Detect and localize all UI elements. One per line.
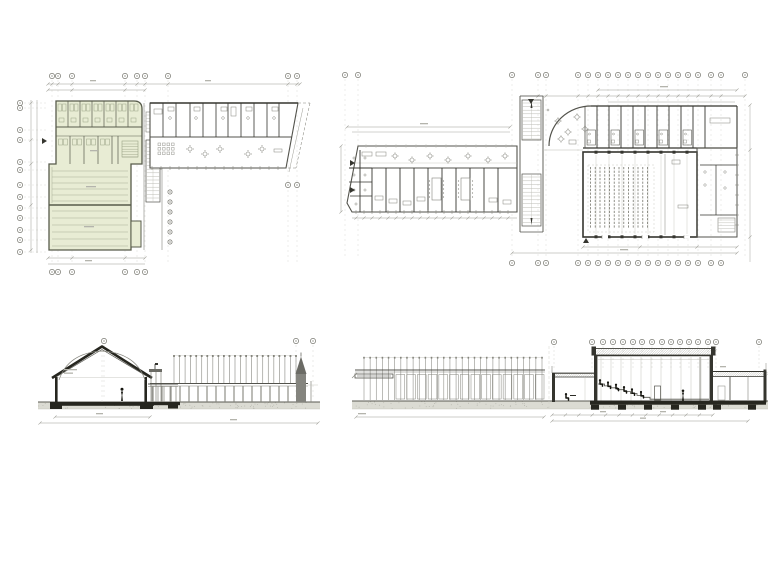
grid-bubble <box>17 194 22 199</box>
grid-bubble <box>142 73 147 78</box>
grid-bubble <box>605 72 610 77</box>
grid-bubble <box>615 260 620 265</box>
person-figure-seated <box>599 379 603 386</box>
grid-bubble <box>655 72 660 77</box>
grid-bubble <box>509 260 514 265</box>
grid-bubble <box>17 237 22 242</box>
grid-bubble <box>575 72 580 77</box>
grid-bubble <box>645 72 650 77</box>
grid-bubble <box>605 260 610 265</box>
grid-bubble <box>122 73 127 78</box>
grid-bubble <box>695 260 700 265</box>
auditorium-box-section <box>590 347 717 410</box>
grid-bubble <box>665 260 670 265</box>
grid-bubble <box>165 73 170 78</box>
grid-bubble <box>620 339 625 344</box>
grid-bubble <box>310 338 315 343</box>
grid-bubble <box>293 338 298 343</box>
right-low-wing-section <box>713 363 768 410</box>
grid-bubble <box>668 339 673 344</box>
grid-bubble <box>535 260 540 265</box>
grid-bubble <box>17 100 22 105</box>
grid-bubble <box>589 339 594 344</box>
grid-bubble <box>168 240 172 244</box>
grid-bubble <box>168 220 172 224</box>
grid-bubble <box>294 182 299 187</box>
grid-bubble <box>708 72 713 77</box>
grid-bubble <box>585 72 590 77</box>
grid-bubble <box>742 72 747 77</box>
grid-bubble <box>685 72 690 77</box>
grid-bubble <box>17 127 22 132</box>
grid-bubble <box>718 260 723 265</box>
grid-bubble <box>625 260 630 265</box>
grid-bubble <box>69 269 74 274</box>
person-figure <box>121 388 124 401</box>
drawing-canvas <box>0 0 768 576</box>
grid-bubble <box>649 339 654 344</box>
person-figure-seated <box>640 391 644 398</box>
grid-bubble <box>49 269 54 274</box>
grid-bubble <box>705 339 710 344</box>
grid-bubble <box>713 339 718 344</box>
architectural-sheet <box>0 0 768 576</box>
grid-bubble <box>168 210 172 214</box>
left-low-wing-section <box>552 366 597 402</box>
grid-bubble <box>17 249 22 254</box>
grid-bubble <box>756 339 761 344</box>
grid-bubble <box>285 182 290 187</box>
grid-bubble <box>655 260 660 265</box>
grid-bubble <box>134 73 139 78</box>
grid-bubble <box>595 260 600 265</box>
grid-bubble <box>610 339 615 344</box>
grid-bubble <box>355 72 360 77</box>
highlighted-sports-building <box>49 101 142 250</box>
grid-bubble <box>543 72 548 77</box>
grid-bubble <box>585 260 590 265</box>
grid-bubble <box>677 339 682 344</box>
grid-bubble <box>17 215 22 220</box>
auditorium-hall <box>583 151 697 243</box>
grid-bubble <box>675 260 680 265</box>
grid-bubble <box>142 269 147 274</box>
grid-bubble <box>294 73 299 78</box>
grid-bubble <box>17 159 22 164</box>
person-figure-seated <box>607 381 611 388</box>
grid-bubble <box>122 269 127 274</box>
floor-plan-east-building <box>339 72 751 265</box>
grid-bubble <box>17 205 22 210</box>
grid-bubble <box>168 190 172 194</box>
grid-bubble <box>685 260 690 265</box>
grid-bubble <box>665 72 670 77</box>
stair-core <box>520 96 543 232</box>
classroom-wing <box>150 103 310 170</box>
dressing-room-strip <box>583 106 737 148</box>
person-figure-seated <box>565 393 569 400</box>
colonnade-elevation <box>150 355 308 402</box>
grid-and-dimensions <box>38 338 319 424</box>
grid-bubble <box>708 260 713 265</box>
grid-bubble <box>718 72 723 77</box>
grid-bubble <box>285 73 290 78</box>
grid-bubble <box>551 339 556 344</box>
foyer-curved-wall <box>543 106 591 150</box>
person-figure-seated <box>631 388 635 395</box>
grid-bubble <box>595 72 600 77</box>
grid-bubble <box>625 72 630 77</box>
stage-annex <box>697 148 739 237</box>
grid-bubble <box>645 260 650 265</box>
grid-bubble <box>509 72 514 77</box>
person-figure-seated <box>615 384 619 391</box>
grid-bubble <box>55 73 60 78</box>
grid-bubble <box>17 182 22 187</box>
grid-bubble <box>600 339 605 344</box>
grid-bubble <box>615 72 620 77</box>
grid-bubble <box>101 338 106 343</box>
grid-bubble <box>695 339 700 344</box>
grid-bubble <box>17 227 22 232</box>
grid-bubble <box>635 72 640 77</box>
grid-bubble <box>168 230 172 234</box>
grid-bubble <box>639 339 644 344</box>
floor-plan-west-building <box>17 73 310 274</box>
grid-bubble <box>342 72 347 77</box>
grid-bubble <box>168 200 172 204</box>
office-wing <box>347 144 517 214</box>
grid-bubble <box>675 72 680 77</box>
section-auditorium <box>352 339 768 422</box>
grid-bubble <box>543 260 548 265</box>
grid-bubble <box>535 72 540 77</box>
grid-bubble <box>635 260 640 265</box>
grid-bubble <box>575 260 580 265</box>
spire <box>296 353 319 403</box>
grid-bubble <box>686 339 691 344</box>
grid-bubble <box>49 73 54 78</box>
gable-hall-section <box>50 347 162 410</box>
grid-bubble <box>55 269 60 274</box>
grid-bubble <box>17 167 22 172</box>
section-gable-hall <box>38 338 320 424</box>
grid-bubble <box>695 72 700 77</box>
grid-bubble <box>17 105 22 110</box>
grid-bubble <box>630 339 635 344</box>
grid-bubble <box>69 73 74 78</box>
colonnade-elevation <box>352 357 545 400</box>
grid-bubble <box>659 339 664 344</box>
grid-bubble <box>17 137 22 142</box>
grid-bubble <box>134 269 139 274</box>
